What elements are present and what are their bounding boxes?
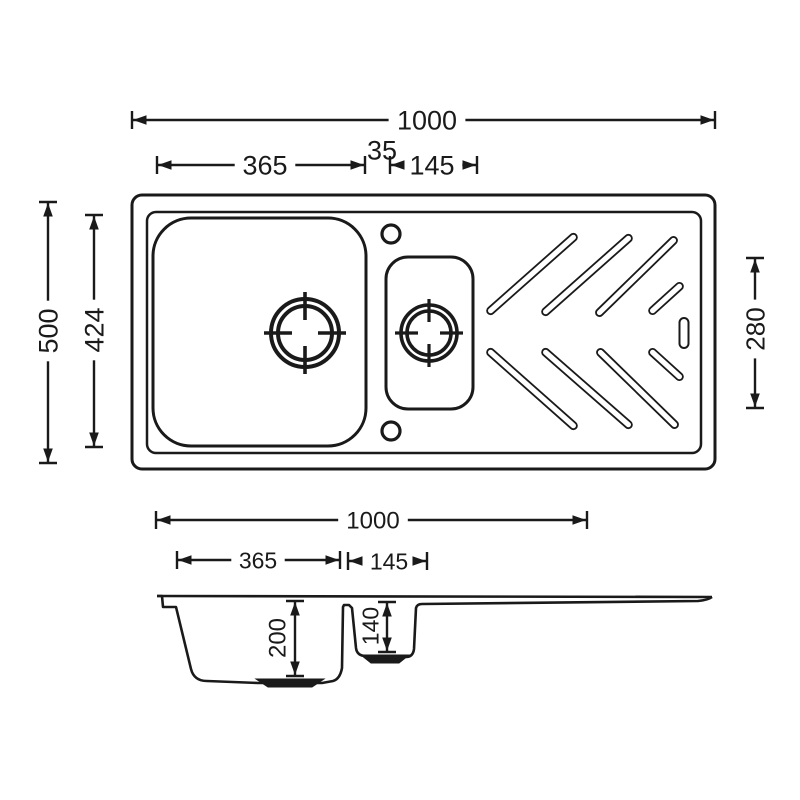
drainer-groove [595, 235, 679, 317]
dim-label-small-bowl-width-side: 145 [370, 548, 408, 574]
dimension-drainer-length: 280 [740, 258, 770, 408]
dim-arrowhead [158, 160, 172, 170]
dim-arrowhead [382, 603, 392, 617]
dim-arrowhead [133, 115, 147, 125]
drain-outlet-bump [256, 679, 324, 687]
dimension-overall-width-top: 1000 [132, 104, 715, 135]
dimension-divider-width-top: 35 [367, 136, 397, 166]
tap-hole [382, 422, 400, 440]
sink-technical-drawing: 1000365145100036514550042428020014035 [0, 0, 800, 800]
dim-label-drainer-length: 280 [740, 307, 770, 350]
dim-arrowhead [463, 160, 477, 170]
dim-label-divider-width-top: 35 [367, 136, 397, 166]
side-profile [157, 596, 712, 683]
drainer-groove [486, 347, 579, 430]
dim-arrowhead [349, 556, 363, 566]
dimension-overall-depth: 500 [32, 202, 63, 463]
dimension-small-bowl-width-side: 145 [348, 548, 427, 575]
drainer-groove [648, 347, 685, 381]
drainer-groove [648, 281, 685, 315]
tap-hole [382, 225, 400, 243]
dim-arrowhead [701, 115, 715, 125]
overflow-slot [680, 318, 689, 348]
dim-arrowhead [89, 216, 99, 230]
dim-arrowhead [157, 515, 171, 525]
side-rim-top-line [157, 596, 712, 597]
dim-arrowhead [750, 259, 760, 273]
small-bowl-drain [395, 299, 463, 367]
drain-outlet-bump [361, 655, 409, 663]
drainer-groove [541, 347, 634, 429]
dim-arrowhead [43, 449, 53, 463]
dim-arrowhead [290, 662, 300, 676]
dim-label-small-bowl-depth: 140 [357, 607, 383, 645]
dim-label-overall-width-side: 1000 [346, 508, 399, 535]
dimension-overall-width-side: 1000 [156, 506, 587, 534]
dim-arrowhead [413, 556, 427, 566]
dim-arrowhead [750, 394, 760, 408]
side-view [157, 596, 712, 687]
dim-arrowhead [573, 515, 587, 525]
dim-label-large-bowl-width-top: 365 [242, 151, 287, 181]
dimension-large-bowl-depth: 200 [265, 601, 304, 676]
large-bowl-drain [264, 292, 346, 374]
dim-label-large-bowl-width-side: 365 [239, 547, 277, 573]
dim-arrowhead [43, 203, 53, 217]
sink-diagram-svg: 1000365145100036514550042428020014035 [0, 0, 800, 800]
drainer-groove [541, 233, 634, 316]
dimension-small-bowl-depth: 140 [357, 602, 396, 652]
dimension-inner-depth: 424 [78, 215, 109, 447]
dimension-large-bowl-width-top: 365 [157, 149, 365, 180]
dim-arrowhead [382, 638, 392, 652]
dim-arrowhead [89, 433, 99, 447]
dimension-small-bowl-width-top: 145 [390, 149, 477, 180]
dim-arrowhead [178, 555, 192, 565]
drainer-groove [486, 232, 579, 315]
dimension-large-bowl-width-side: 365 [177, 547, 340, 574]
dim-arrowhead [290, 602, 300, 616]
dim-label-small-bowl-width-top: 145 [409, 151, 454, 181]
dim-label-overall-width-top: 1000 [397, 106, 457, 136]
top-view [132, 195, 715, 469]
dim-label-inner-depth: 424 [80, 307, 110, 352]
dim-arrowhead [351, 160, 365, 170]
dim-arrowhead [326, 555, 340, 565]
dim-label-large-bowl-depth: 200 [265, 618, 292, 658]
dim-label-overall-depth: 500 [34, 308, 64, 353]
